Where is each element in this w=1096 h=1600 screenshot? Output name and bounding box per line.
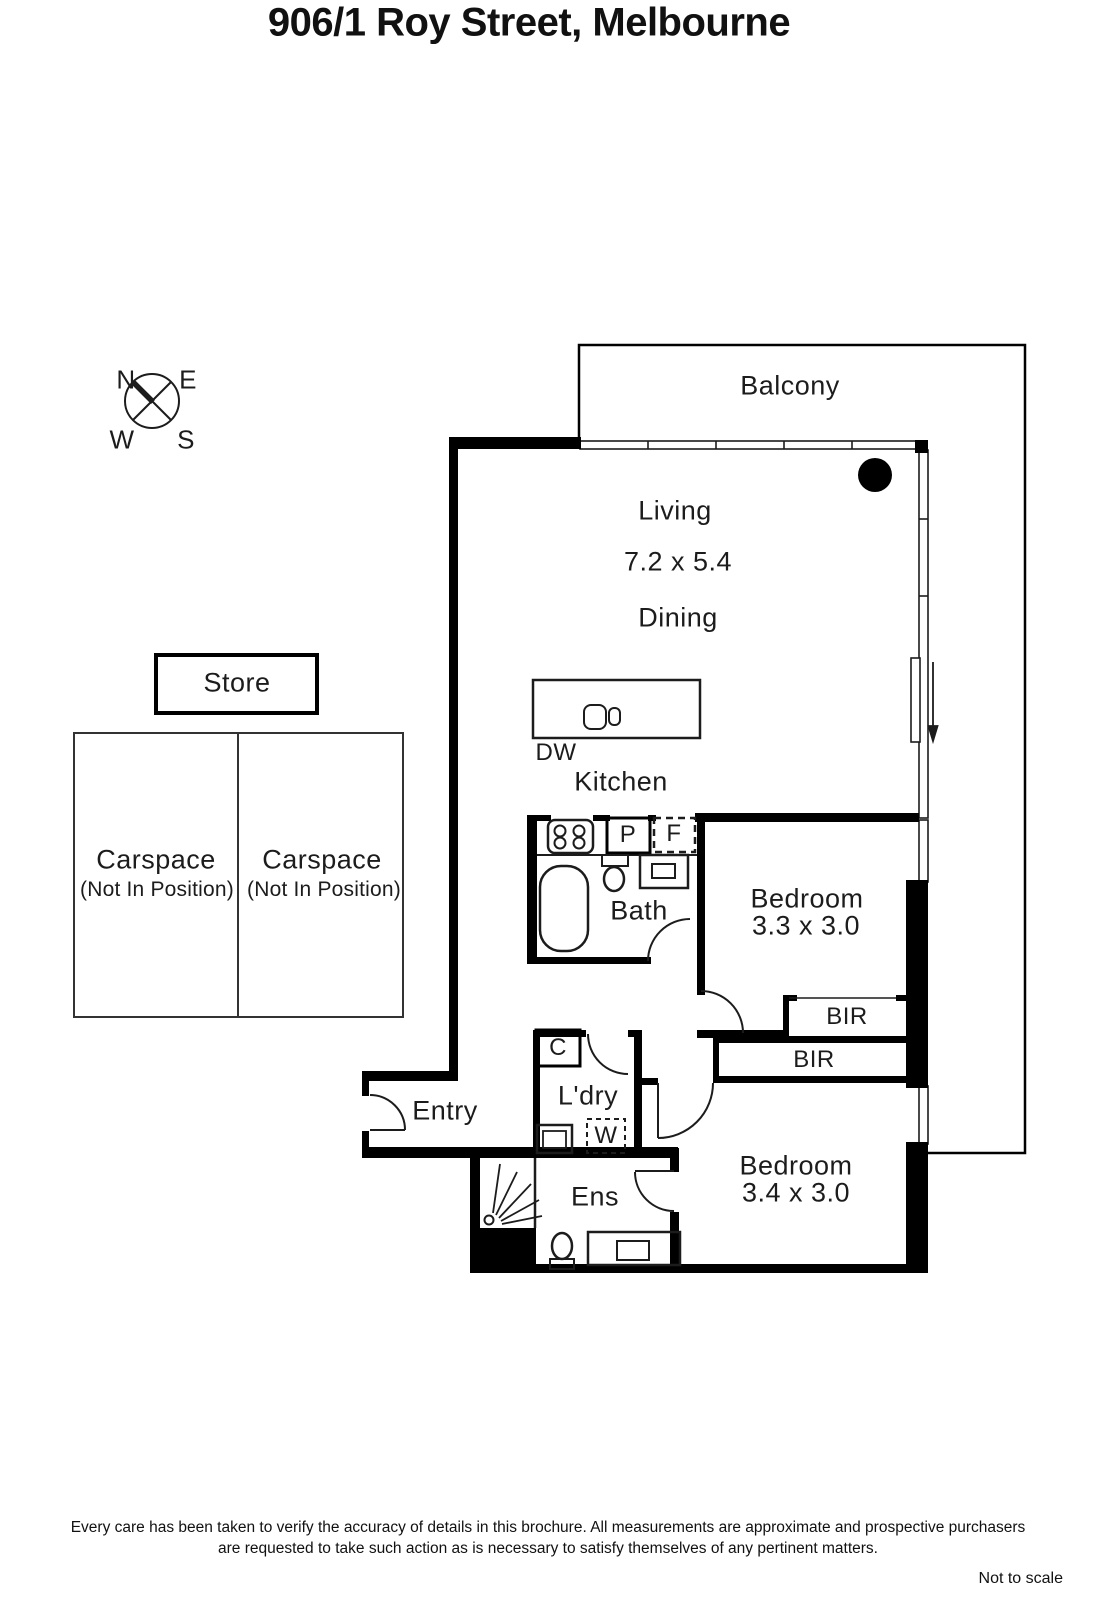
label-dishwasher: DW (536, 739, 577, 767)
label-living-dims: 7.2 x 5.4 (624, 547, 732, 578)
sliding-door-arrow-icon (929, 662, 938, 741)
toilet-ensuite-icon (550, 1233, 574, 1269)
column-dot (858, 458, 892, 492)
label-ensuite: Ens (571, 1182, 619, 1213)
label-carspace-left-note: (Not In Position) (80, 878, 234, 902)
shower-icon (485, 1158, 543, 1228)
label-bedroom2-dims: 3.4 x 3.0 (742, 1178, 850, 1209)
laundry-trough-icon (537, 1125, 572, 1153)
label-entry: Entry (412, 1096, 478, 1127)
bedroom1-door-arc (701, 991, 743, 1033)
cooktop-icon (548, 820, 593, 853)
label-pantry: P (620, 821, 637, 849)
label-washer: W (594, 1122, 617, 1150)
label-laundry: L'dry (558, 1081, 618, 1112)
vanity-bath-icon (640, 855, 688, 888)
sink-icon (584, 705, 606, 729)
kitchen-island (533, 680, 700, 738)
bedroom2-door-arc (658, 1083, 713, 1138)
label-kitchen: Kitchen (574, 767, 668, 798)
disclaimer-line-2: are requested to take such action as is … (218, 1540, 878, 1558)
label-store: Store (203, 668, 270, 699)
vanity-ensuite-icon (588, 1232, 680, 1265)
compass-north: N (116, 365, 135, 396)
scale-note: Not to scale (979, 1570, 1063, 1588)
disclaimer-line-1: Every care has been taken to verify the … (71, 1519, 1026, 1537)
balcony-outline (579, 345, 1025, 1153)
label-bir-top: BIR (826, 1003, 868, 1031)
floorplan-page: 906/1 Roy Street, Melbourne (0, 0, 1096, 1600)
label-living: Living (638, 496, 712, 527)
label-fridge: F (666, 820, 681, 848)
label-carspace-right: Carspace (262, 845, 382, 876)
ensuite-door-arc (635, 1172, 674, 1211)
label-cupboard: C (549, 1034, 567, 1062)
bathtub-icon (540, 866, 588, 951)
entry-door-arc (370, 1095, 405, 1130)
label-carspace-right-note: (Not In Position) (247, 878, 401, 902)
toilet-bath-icon (602, 855, 628, 891)
label-dining: Dining (638, 603, 718, 634)
compass-east: E (179, 365, 197, 396)
compass-south: S (177, 425, 195, 456)
label-bath: Bath (610, 896, 668, 927)
floor-plan-drawing (0, 0, 1096, 1600)
compass-west: W (109, 425, 134, 456)
label-balcony: Balcony (740, 371, 840, 402)
label-bedroom1-dims: 3.3 x 3.0 (752, 911, 860, 942)
label-carspace-left: Carspace (96, 845, 216, 876)
label-bir-bottom: BIR (793, 1046, 835, 1074)
laundry-door-arc (588, 1034, 628, 1074)
